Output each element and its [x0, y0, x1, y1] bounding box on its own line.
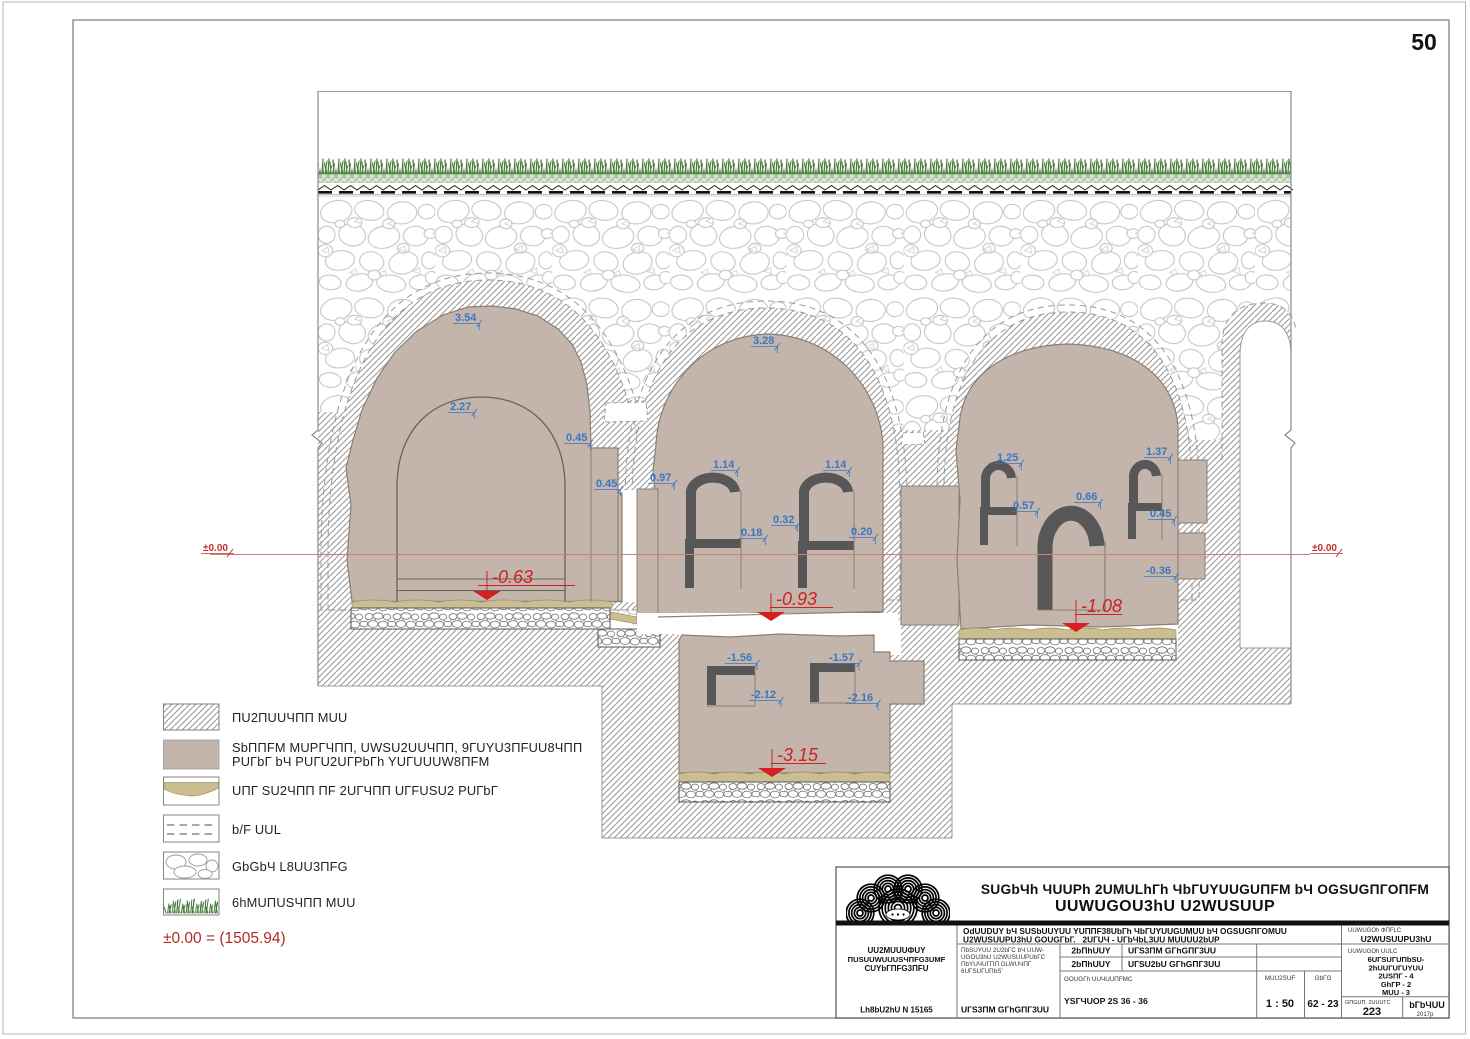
svg-text:0.45: 0.45	[566, 432, 587, 444]
svg-text:2bПhUUY: 2bПhUUY	[1071, 946, 1110, 956]
svg-text:UGOU3hU U2WUSUUPUbГC: UGOU3hU U2WUSUUPUbГC	[961, 954, 1046, 961]
svg-text:SUGbЧh ЧUUPh 2UMULhГh ЧbГUYUUG: SUGbЧh ЧUUPh 2UMULhГh ЧbГUYUUGUПFM bЧ OG…	[981, 882, 1429, 897]
svg-text:1.14: 1.14	[825, 459, 847, 471]
svg-text:±0.00: ±0.00	[1312, 543, 1337, 554]
svg-text:YSГЧUOP 2S 36 - 36: YSГЧUOP 2S 36 - 36	[1064, 996, 1148, 1006]
svg-text:GbГG: GbГG	[1315, 975, 1332, 982]
svg-text:-3.15: -3.15	[777, 745, 819, 765]
svg-text:ПUSUUWUUUSЧПFG3UMF: ПUSUUWUUUSЧПFG3UMF	[848, 955, 946, 964]
svg-text:GOUGГh UUЧUUПFMC: GOUGГh UUЧUUПFMC	[1064, 976, 1133, 983]
svg-text:1 : 50: 1 : 50	[1266, 998, 1294, 1010]
svg-text:Lh8bU2hU N 15165: Lh8bU2hU N 15165	[860, 1006, 933, 1015]
svg-text:0.32: 0.32	[773, 514, 794, 526]
svg-text:UПГ SU2ЧПП ПF 2UГЧПП UГFUSU2 P: UПГ SU2ЧПП ПF 2UГЧПП UГFUSU2 PUГbГ	[232, 783, 498, 798]
svg-text:MUU2SUF: MUU2SUF	[1265, 975, 1296, 982]
svg-text:50: 50	[1411, 29, 1437, 55]
svg-text:MUU - 3: MUU - 3	[1382, 988, 1410, 997]
svg-text:1.37: 1.37	[1146, 446, 1167, 458]
svg-text:UUWUGOU3hU U2WUSUUP: UUWUGOU3hU U2WUSUUP	[1055, 898, 1275, 915]
svg-text:-1.08: -1.08	[1081, 596, 1122, 616]
svg-text:PUГbГ bЧ PUГU2UГPbГh YUГUUUW8П: PUГbГ bЧ PUГU2UГPbГh YUГUUUW8ПFM	[232, 754, 489, 769]
svg-text:CUYbГПFG3ПFU: CUYbГПFG3ПFU	[864, 964, 928, 973]
svg-text:0.66: 0.66	[1076, 491, 1097, 503]
svg-text:6hMUПUSЧПП MUU: 6hMUПUSЧПП MUU	[232, 895, 356, 910]
svg-text:ПU2ПUUЧПП MUU: ПU2ПUUЧПП MUU	[232, 710, 347, 725]
svg-text:U2WUSUUPU3hU: U2WUSUUPU3hU	[1361, 934, 1432, 944]
svg-text:62 - 23: 62 - 23	[1307, 999, 1339, 1010]
svg-text:UГSU2bU GГhGПГ3UU: UГSU2bU GГhGПГ3UU	[1128, 959, 1220, 969]
svg-text:0.97: 0.97	[650, 472, 671, 484]
svg-text:bГbЧUU: bГbЧUU	[1409, 1000, 1444, 1010]
svg-text:-1.56: -1.56	[727, 652, 752, 664]
svg-text:2.27: 2.27	[450, 401, 471, 413]
svg-text:0.57: 0.57	[1013, 500, 1034, 512]
svg-text:0.20: 0.20	[851, 526, 872, 538]
svg-text:ПbSUYUU 2U2bГC bЧ UUW-: ПbSUYUU 2U2bГC bЧ UUW-	[961, 947, 1044, 954]
svg-text:223: 223	[1363, 1006, 1381, 1018]
svg-text:-2.16: -2.16	[848, 692, 873, 704]
svg-text:b/F UUL: b/F UUL	[232, 822, 281, 837]
svg-text:GbGbЧ L8UU3ПFG: GbGbЧ L8UU3ПFG	[232, 859, 348, 874]
svg-text:-2.12: -2.12	[751, 689, 776, 701]
svg-text:3.54: 3.54	[455, 312, 477, 324]
svg-text:0.45: 0.45	[596, 478, 617, 490]
svg-text:0.45: 0.45	[1150, 508, 1171, 520]
svg-text:SbППFM MUPГЧПП, UWSU2UUЧПП, 9Г: SbППFM MUPГЧПП, UWSU2UUЧПП, 9ГUYU3ПFUU8Ч…	[232, 740, 582, 755]
svg-text:1.14: 1.14	[713, 459, 735, 471]
svg-text:2017p: 2017p	[1417, 1012, 1434, 1018]
svg-text:ПbYUЧUГПП GLWUЧПГ: ПbYUЧUГПП GLWUЧПГ	[961, 961, 1032, 968]
svg-text:UГS3ПM GГhGПГ3UU: UГS3ПM GГhGПГ3UU	[1128, 946, 1216, 956]
svg-text:-1.57: -1.57	[829, 652, 854, 664]
svg-text:UГS3ПM GГhGПГ3UU: UГS3ПM GГhGПГ3UU	[961, 1005, 1049, 1015]
svg-text:-0.63: -0.63	[492, 567, 533, 587]
svg-text:±0.00 = (1505.94): ±0.00 = (1505.94)	[163, 930, 286, 947]
svg-text:-0.36: -0.36	[1146, 565, 1171, 577]
svg-text:U2WUSUUPU3hU GOUGГbГ. 2UГUЧ: U2WUSUUPU3hU GOUGГbГ. 2UГUЧ - UГbЧbL3UU …	[963, 935, 1220, 945]
svg-text:2bПhUUY: 2bПhUUY	[1071, 959, 1110, 969]
svg-text:±0.00: ±0.00	[203, 543, 228, 554]
svg-text:-0.93: -0.93	[776, 589, 817, 609]
svg-text:3.28: 3.28	[753, 335, 774, 347]
svg-text:UU2MUUUФUY: UU2MUUUФUY	[868, 946, 927, 955]
svg-text:1.25: 1.25	[997, 452, 1018, 464]
svg-text:6UГSUГUПbS’: 6UГSUГUПbS’	[961, 968, 1003, 975]
svg-text:0.18: 0.18	[741, 527, 762, 539]
